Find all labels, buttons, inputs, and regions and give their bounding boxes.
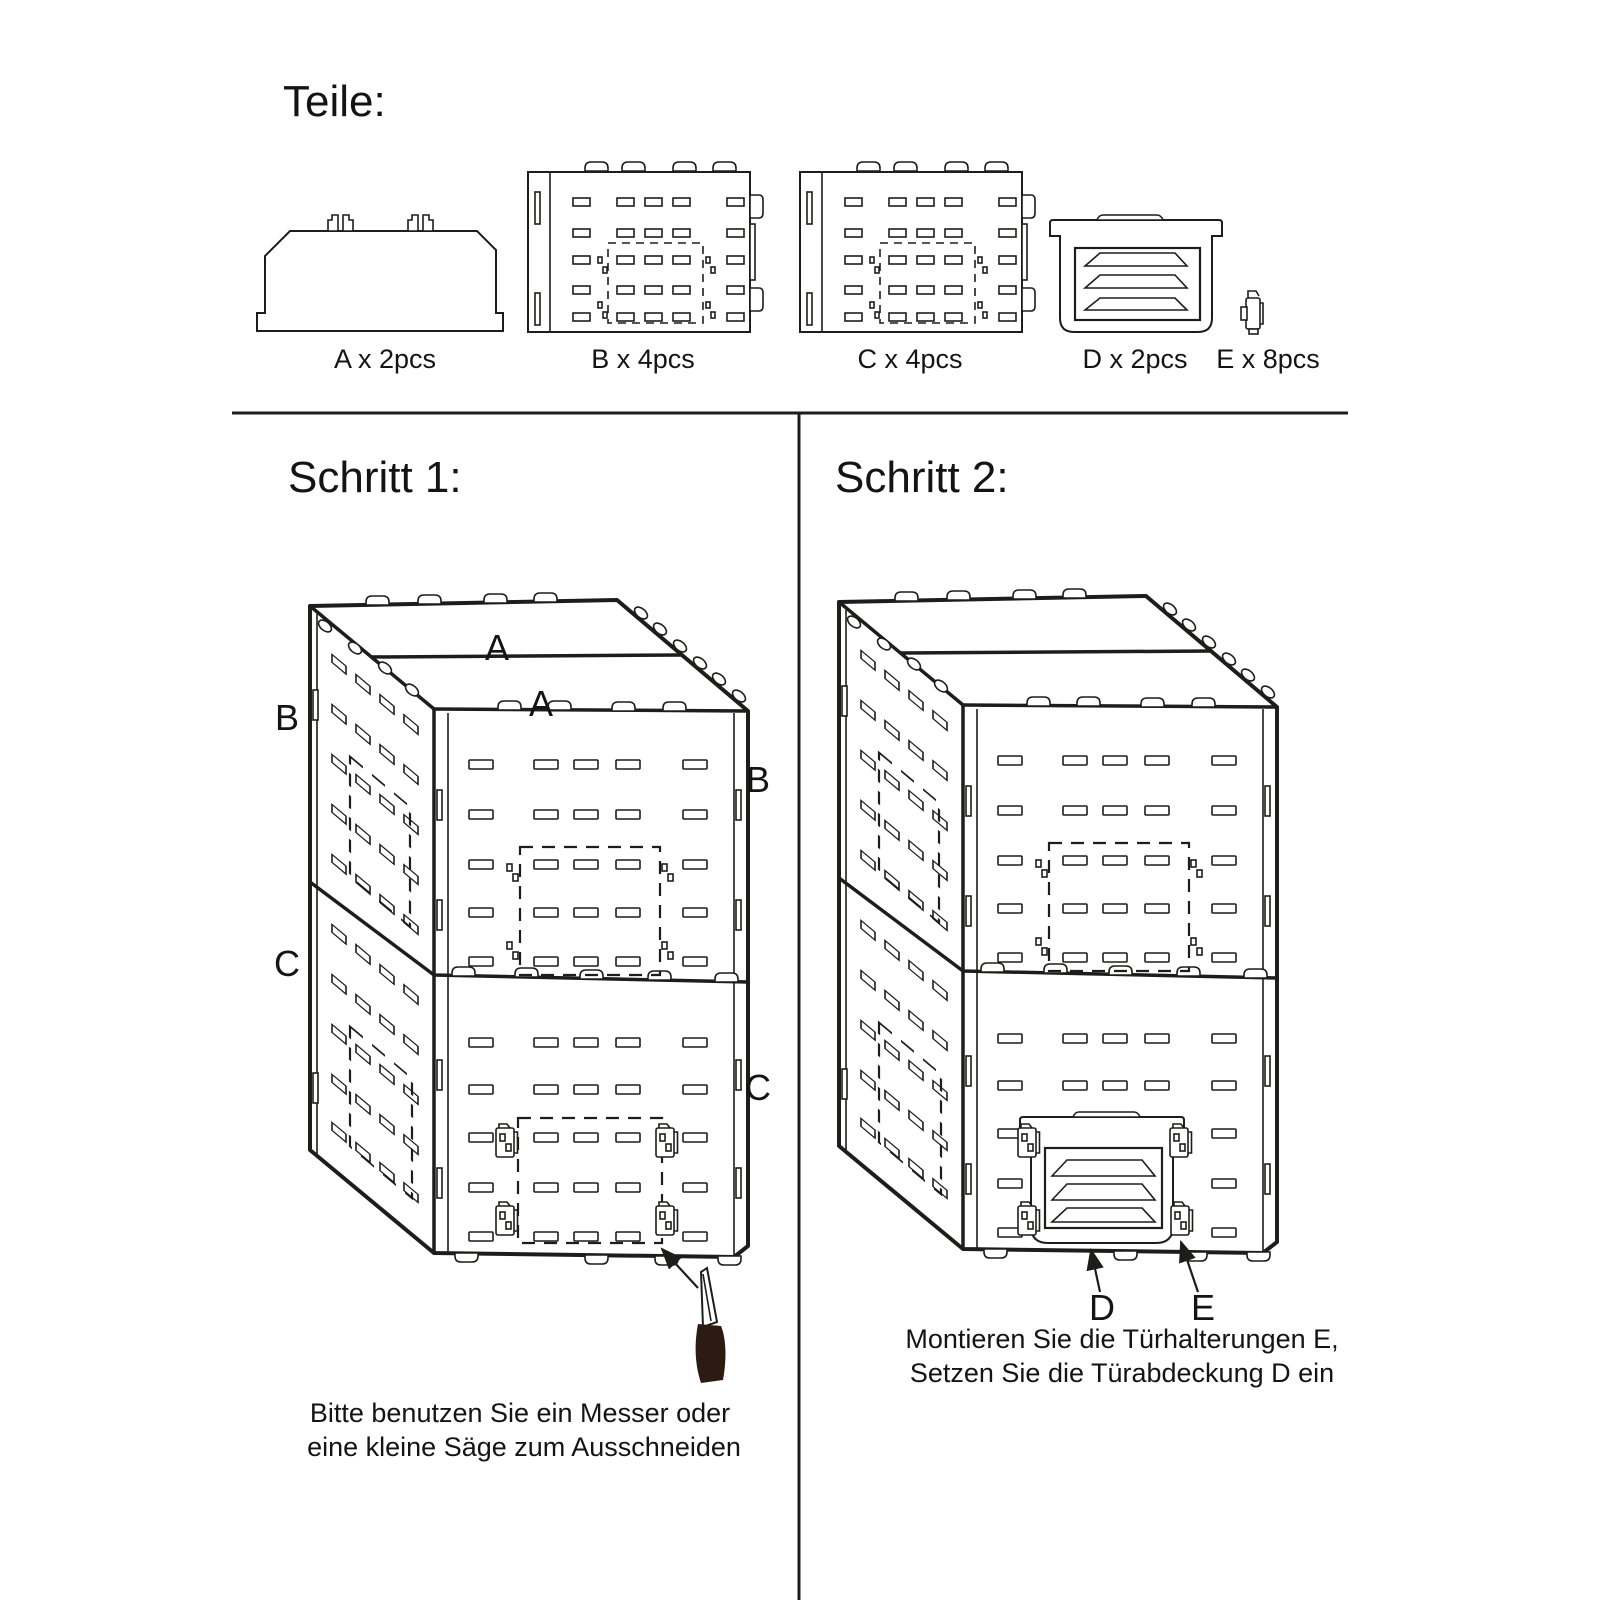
- step1-label-b-right: B: [746, 759, 770, 800]
- part-e-drawing: [1241, 291, 1263, 334]
- step1-note-line1: Bitte benutzen Sie ein Messer oder: [310, 1398, 730, 1428]
- part-c-drawing: [800, 162, 1035, 332]
- diagram-canvas: Teile: A x 2pcs B x 4pcs C x 4pcs D x 2p…: [0, 0, 1600, 1600]
- door-clip: [496, 1202, 518, 1235]
- step1-title: Schritt 1:: [288, 453, 462, 502]
- door-clip: [496, 1124, 518, 1157]
- step1-note-line2: eine kleine Säge zum Ausschneiden: [307, 1432, 741, 1462]
- step2-label-d: D: [1089, 1287, 1115, 1328]
- door-clip: [1171, 1202, 1193, 1235]
- vent-door: [1020, 1112, 1184, 1243]
- door-arrow: [1091, 1250, 1100, 1292]
- part-b-label: B x 4pcs: [591, 344, 695, 374]
- part-b-drawing: [528, 162, 763, 332]
- step2-title: Schritt 2:: [835, 453, 1009, 502]
- step1-label-a-top: A: [485, 627, 509, 668]
- step1-diagram: A A B B C C: [274, 593, 771, 1383]
- part-d-label: D x 2pcs: [1082, 344, 1187, 374]
- part-e-label: E x 8pcs: [1216, 344, 1320, 374]
- knife-handle: [696, 1324, 726, 1383]
- step1-label-b-left: B: [275, 697, 299, 738]
- part-a-label: A x 2pcs: [334, 344, 436, 374]
- door-clip: [1018, 1124, 1040, 1157]
- knife-icon: [696, 1268, 726, 1383]
- parts-title: Teile:: [283, 77, 386, 126]
- step1-label-c-left: C: [274, 943, 300, 984]
- part-d-drawing: [1050, 215, 1222, 332]
- step1-label-c-right: C: [745, 1067, 771, 1108]
- part-c-label: C x 4pcs: [857, 344, 962, 374]
- door-clip: [656, 1202, 678, 1235]
- step2-diagram: D E: [839, 589, 1277, 1328]
- door-clip: [656, 1124, 678, 1157]
- step2-note-line1: Montieren Sie die Türhalterungen E,: [905, 1324, 1338, 1354]
- instruction-sheet: Teile: A x 2pcs B x 4pcs C x 4pcs D x 2p…: [0, 0, 1600, 1600]
- step1-label-a-front: A: [529, 683, 553, 724]
- door-clip: [1170, 1124, 1192, 1157]
- part-a-drawing: [257, 215, 503, 331]
- door-clip: [1018, 1202, 1040, 1235]
- step2-label-e: E: [1191, 1287, 1215, 1328]
- step2-note-line2: Setzen Sie die Türabdeckung D ein: [910, 1358, 1334, 1388]
